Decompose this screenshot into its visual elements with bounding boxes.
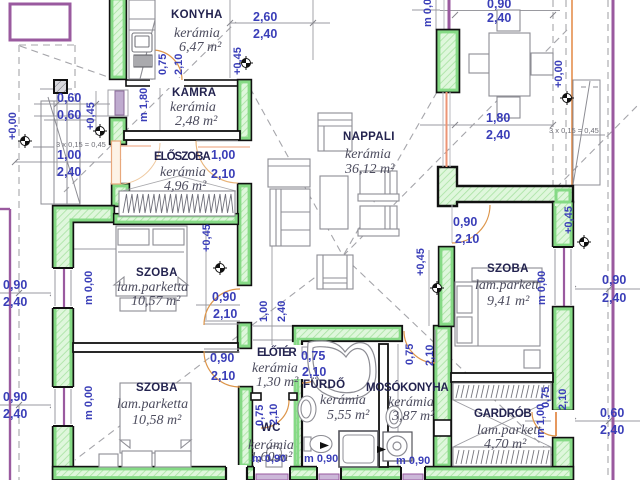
svg-text:ELŐTÉR: ELŐTÉR — [257, 346, 297, 359]
svg-text:36,12 m²: 36,12 m² — [344, 162, 395, 177]
svg-text:lam.parkett: lam.parkett — [475, 278, 540, 293]
svg-text:2,40: 2,40 — [3, 407, 27, 421]
svg-text:3 x 0,15 = 0,45: 3 x 0,15 = 0,45 — [56, 140, 106, 149]
svg-text:kerámia: kerámia — [160, 165, 206, 180]
svg-text:5,55 m²: 5,55 m² — [327, 408, 370, 423]
svg-text:lam.parkett: lam.parkett — [477, 423, 542, 438]
svg-text:FÜRDŐ: FÜRDŐ — [303, 378, 345, 391]
svg-text:2,10: 2,10 — [557, 389, 569, 410]
svg-text:2,40: 2,40 — [600, 423, 624, 437]
svg-text:1,00: 1,00 — [258, 301, 270, 322]
svg-text:2,10: 2,10 — [211, 369, 235, 383]
svg-text:2,10: 2,10 — [211, 167, 235, 181]
svg-text:6,47 m²: 6,47 m² — [179, 40, 222, 55]
svg-text:2,10: 2,10 — [173, 54, 185, 75]
svg-text:2,40: 2,40 — [602, 291, 626, 305]
svg-text:kerámia: kerámia — [345, 147, 391, 162]
svg-text:m 0,90: m 0,90 — [396, 455, 430, 467]
svg-text:0,60: 0,60 — [57, 91, 81, 105]
svg-text:m 0,00: m 0,00 — [83, 271, 95, 305]
svg-text:10,57 m²: 10,57 m² — [131, 294, 181, 309]
svg-text:2,40: 2,40 — [487, 11, 511, 25]
svg-text:2,10: 2,10 — [424, 345, 436, 366]
svg-text:1,00: 1,00 — [211, 148, 235, 162]
svg-text:kerámia: kerámia — [252, 361, 298, 376]
svg-text:1,00: 1,00 — [57, 148, 81, 162]
svg-text:2,60: 2,60 — [253, 10, 277, 24]
svg-text:m 0,00: m 0,00 — [83, 386, 95, 420]
svg-text:ELŐSZOBA: ELŐSZOBA — [154, 150, 211, 163]
svg-text:SZOBA: SZOBA — [487, 263, 529, 275]
svg-text:+0,45: +0,45 — [563, 206, 575, 234]
svg-text:3 x 0,15 = 0,45: 3 x 0,15 = 0,45 — [549, 126, 599, 135]
svg-text:kerámia: kerámia — [170, 100, 216, 115]
svg-text:+0,00: +0,00 — [553, 60, 565, 88]
svg-text:1,30 m²: 1,30 m² — [256, 375, 299, 390]
svg-text:2,40: 2,40 — [486, 128, 510, 142]
svg-text:0,60: 0,60 — [57, 108, 81, 122]
svg-text:9,41 m²: 9,41 m² — [487, 294, 530, 309]
svg-text:0,90: 0,90 — [212, 290, 236, 304]
svg-text:3,87 m²: 3,87 m² — [391, 409, 435, 424]
svg-text:+0,00: +0,00 — [7, 112, 19, 140]
svg-text:GARDRÓB: GARDRÓB — [474, 407, 532, 420]
svg-text:kerámia: kerámia — [388, 395, 434, 410]
svg-text:4,70 m²: 4,70 m² — [484, 437, 527, 452]
svg-text:lam.parketta: lam.parketta — [117, 397, 188, 412]
svg-text:+0,45: +0,45 — [415, 248, 427, 276]
svg-text:0,75: 0,75 — [254, 405, 266, 426]
svg-text:2,10: 2,10 — [455, 232, 479, 246]
svg-text:KAMRA: KAMRA — [172, 87, 216, 99]
svg-text:0,90: 0,90 — [3, 278, 27, 292]
svg-text:4,96 m²: 4,96 m² — [164, 179, 207, 194]
svg-text:0,90: 0,90 — [210, 351, 234, 365]
svg-text:m 1,80: m 1,80 — [138, 88, 150, 122]
svg-text:m 0,00: m 0,00 — [536, 271, 548, 305]
svg-text:10,58 m²: 10,58 m² — [132, 413, 182, 428]
svg-text:kerámia: kerámia — [174, 26, 220, 41]
svg-text:+0,45: +0,45 — [201, 224, 213, 252]
svg-text:0,90: 0,90 — [487, 0, 511, 11]
svg-text:MOSÓKONYHA: MOSÓKONYHA — [366, 381, 449, 394]
svg-text:0,90: 0,90 — [3, 390, 27, 404]
svg-text:m 0,90: m 0,90 — [304, 453, 338, 465]
svg-text:KONYHA: KONYHA — [171, 9, 223, 21]
svg-text:0,75: 0,75 — [301, 349, 325, 363]
svg-text:2,40: 2,40 — [253, 27, 277, 41]
svg-text:2,40: 2,40 — [57, 165, 81, 179]
svg-text:1,80: 1,80 — [486, 111, 510, 125]
svg-text:SZOBA: SZOBA — [136, 382, 178, 394]
svg-text:2,10: 2,10 — [268, 404, 280, 425]
svg-text:2,10: 2,10 — [213, 307, 237, 321]
svg-text:2,40: 2,40 — [276, 301, 288, 322]
svg-text:m 1,00: m 1,00 — [535, 404, 547, 438]
svg-text:m 0,0: m 0,0 — [422, 0, 434, 27]
svg-text:+0,45: +0,45 — [85, 102, 97, 130]
svg-text:2,40: 2,40 — [3, 295, 27, 309]
svg-text:0,75: 0,75 — [404, 344, 416, 365]
svg-text:m 0,90: m 0,90 — [252, 453, 286, 465]
svg-text:NAPPALI: NAPPALI — [343, 131, 395, 143]
svg-text:0,75: 0,75 — [157, 54, 169, 75]
svg-text:lam.parketta: lam.parketta — [117, 280, 188, 295]
svg-text:kerámia: kerámia — [320, 393, 366, 408]
svg-text:0,90: 0,90 — [453, 215, 477, 229]
svg-text:0,90: 0,90 — [602, 273, 626, 287]
svg-text:2,48 m²: 2,48 m² — [175, 114, 218, 129]
svg-text:0,60: 0,60 — [600, 406, 624, 420]
svg-text:SZOBA: SZOBA — [136, 267, 178, 279]
svg-text:2,10: 2,10 — [302, 365, 326, 379]
